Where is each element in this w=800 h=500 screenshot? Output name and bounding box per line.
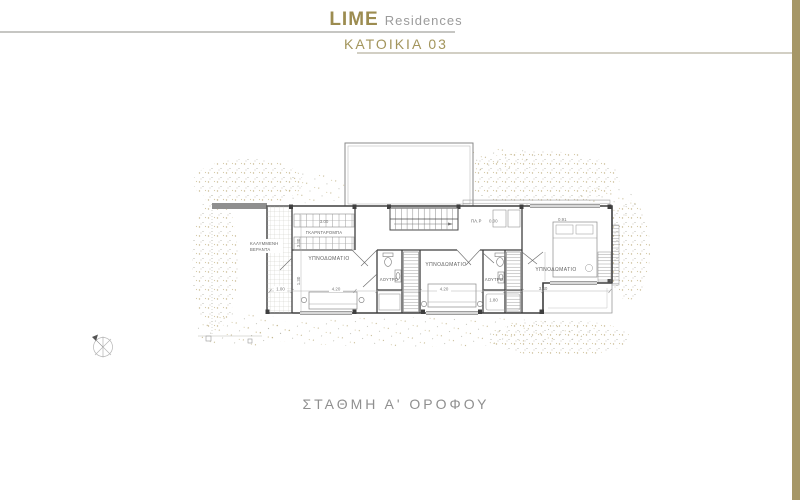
void-outline xyxy=(345,143,473,207)
dim-bath2: 1.80 xyxy=(489,298,498,303)
dim-left-upper: 3.30 xyxy=(296,238,301,247)
bath-2-label: ΛΟΥΤΡΟ xyxy=(485,277,504,282)
landing-label: ΠΛ.Ρ xyxy=(471,219,482,224)
wardrobe-label: ΓΚΑΡΝΤΑΡΟΜΠΑ xyxy=(306,230,343,235)
dim-left-lower: 1.30 xyxy=(296,276,301,285)
north-compass-icon xyxy=(92,335,113,358)
stairs xyxy=(390,208,458,230)
closet-strip-2 xyxy=(507,252,521,312)
dim-bedroom1: 4.20 xyxy=(332,287,341,292)
veranda-area xyxy=(267,206,292,313)
closet-strip-1 xyxy=(404,252,419,312)
bed-2 xyxy=(421,284,482,307)
bedroom-3-label: ΥΠΝΟΔΩΜΑΤΙΟ xyxy=(535,267,576,273)
terrace-step xyxy=(543,283,612,313)
right-balcony xyxy=(612,225,619,285)
bed-1 xyxy=(301,292,364,309)
dim-bedroom3-top: 0.91 xyxy=(558,217,567,222)
entry-wall xyxy=(212,203,267,209)
closet-strip-3 xyxy=(598,252,611,282)
dim-wardrobe: 3.00 xyxy=(320,219,329,224)
dim-level: 0.00 xyxy=(489,219,498,224)
dim-veranda: 1.00 xyxy=(276,287,285,292)
veranda-label-1: ΚΑΛΥΜΜΕΝΗ xyxy=(250,241,278,246)
bedroom-2-label: ΥΠΝΟΔΩΜΑΤΙΟ xyxy=(425,262,466,268)
bath-1-label: ΛΟΥΤΡΟ xyxy=(380,277,399,282)
floor-plan: ΚΑΛΥΜΜΕΝΗ ΒΕΡΑΝΤΑ ΓΚΑΡΝΤΑΡΟΜΠΑ ΥΠΝΟΔΩΜΑΤ… xyxy=(0,0,800,500)
bedroom-1-label: ΥΠΝΟΔΩΜΑΤΙΟ xyxy=(308,256,349,262)
veranda-label-2: ΒΕΡΑΝΤΑ xyxy=(250,247,270,252)
dim-bedroom3: 3.40 xyxy=(539,286,548,291)
dim-bedroom2: 4.20 xyxy=(440,287,449,292)
